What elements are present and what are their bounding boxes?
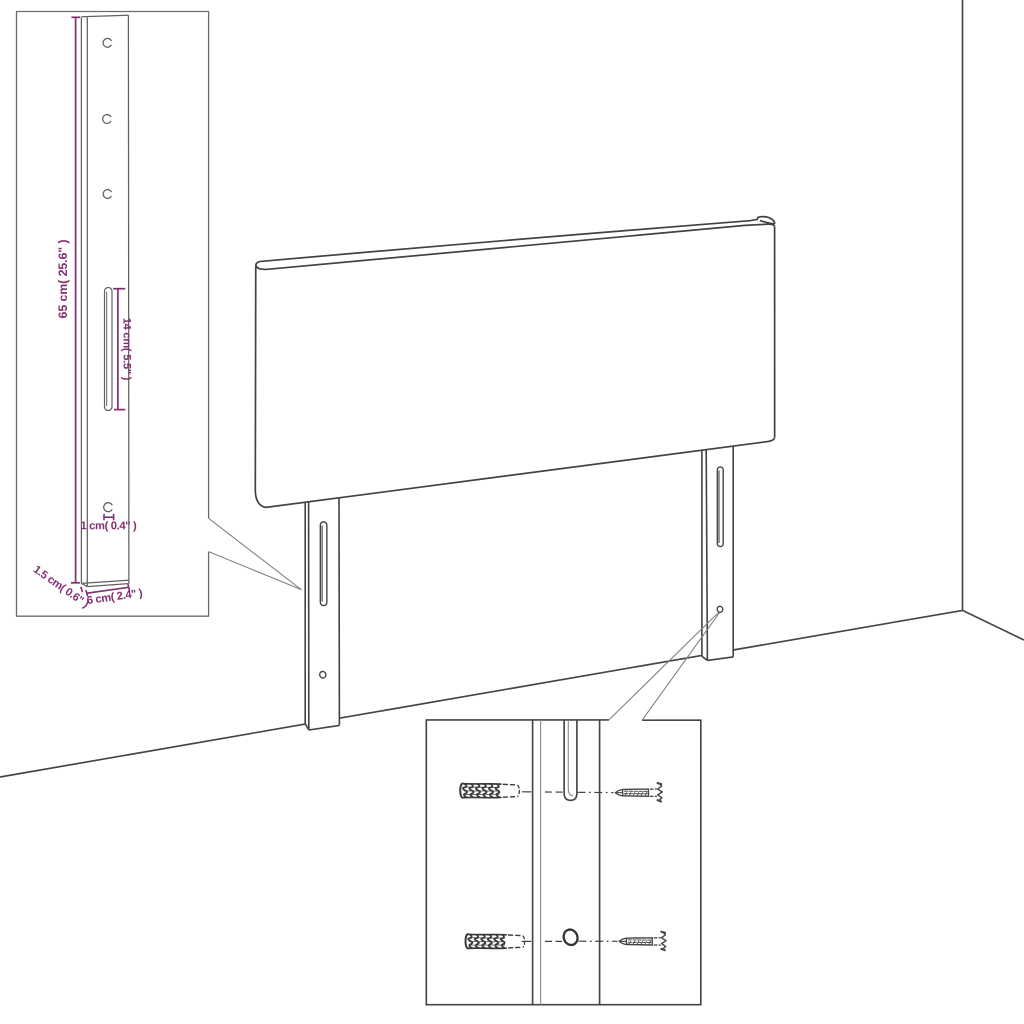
svg-text:14 cm( 5.5" ): 14 cm( 5.5" ) <box>120 318 132 381</box>
svg-text:1 cm( 0.4" ): 1 cm( 0.4" ) <box>80 520 136 532</box>
svg-text:65 cm( 25.6" ): 65 cm( 25.6" ) <box>56 240 70 319</box>
